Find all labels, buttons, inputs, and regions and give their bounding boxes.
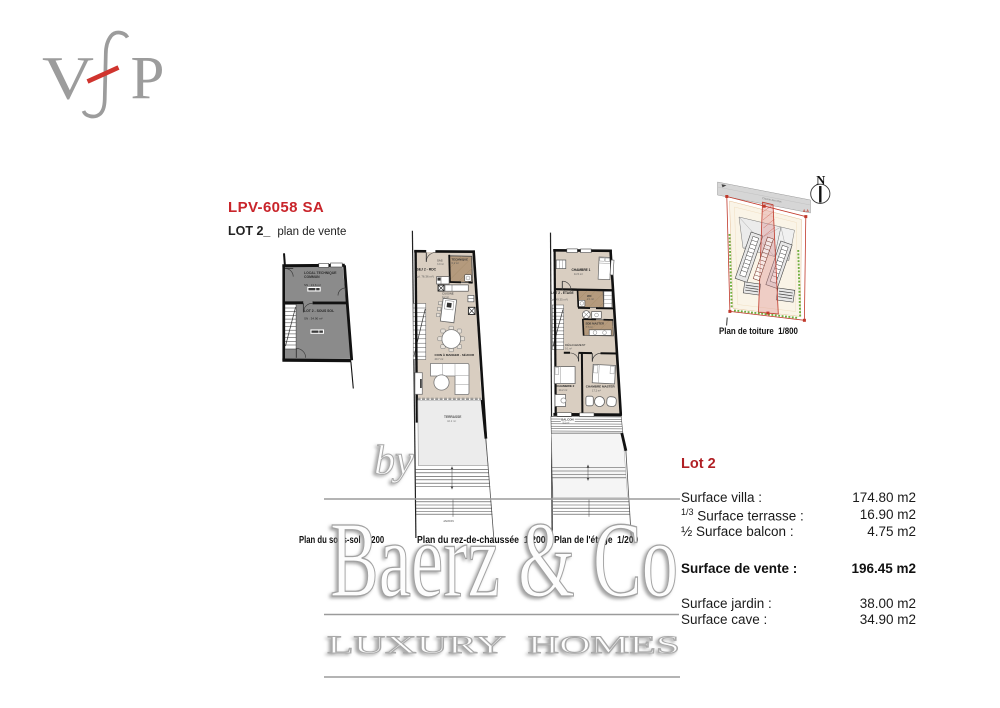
svg-text:by: by (374, 438, 414, 484)
svg-text:Baerz & Co: Baerz & Co (330, 501, 678, 620)
svg-text:LUXURY HOMES: LUXURY HOMES (327, 632, 680, 659)
